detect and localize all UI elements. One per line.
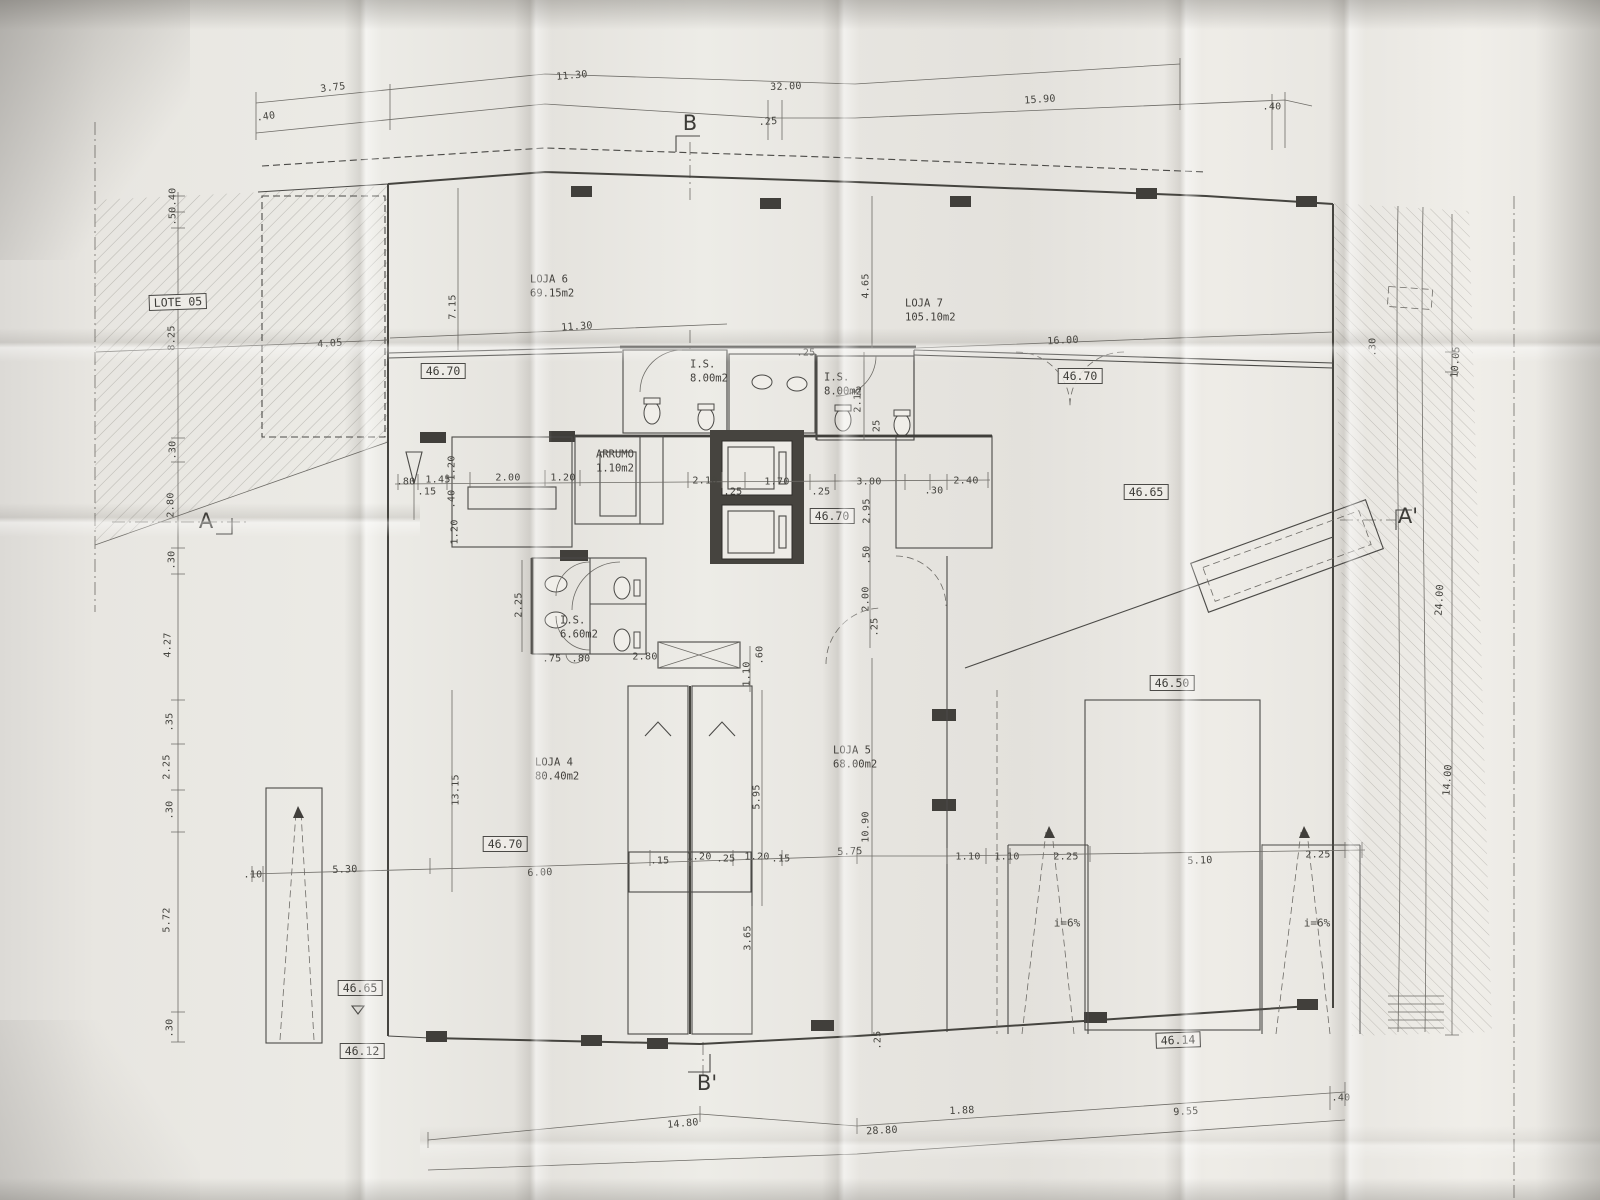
core-right xyxy=(826,352,1124,664)
rear-facade xyxy=(430,1006,1310,1044)
dashed-overhang-line xyxy=(262,148,1206,172)
paper-edge-shadow xyxy=(0,1178,1600,1200)
stair-northwest xyxy=(406,437,572,547)
elevator-shaft xyxy=(710,430,804,564)
ramp-southwest xyxy=(266,788,322,1043)
paper-corner-shadow xyxy=(0,1020,200,1200)
sanitary-block xyxy=(560,347,992,440)
hatched-area-right xyxy=(1333,203,1492,1036)
shopfront-left xyxy=(388,347,622,358)
photographed-floor-plan: .403.7511.3032.00.2515.90.40.40.508.254.… xyxy=(0,0,1600,1200)
zone-east xyxy=(947,500,1383,1034)
ramp-south-1 xyxy=(1008,826,1088,1034)
paper-edge-shadow xyxy=(1536,0,1600,1200)
paper-corner-shadow xyxy=(0,0,190,260)
front-facade xyxy=(388,172,1333,204)
level-mark xyxy=(352,1006,364,1014)
duct-shaft xyxy=(658,642,740,668)
plan-drawing xyxy=(0,0,1600,1200)
shopfront-right xyxy=(914,350,1333,368)
paper-edge-shadow xyxy=(0,0,1600,30)
